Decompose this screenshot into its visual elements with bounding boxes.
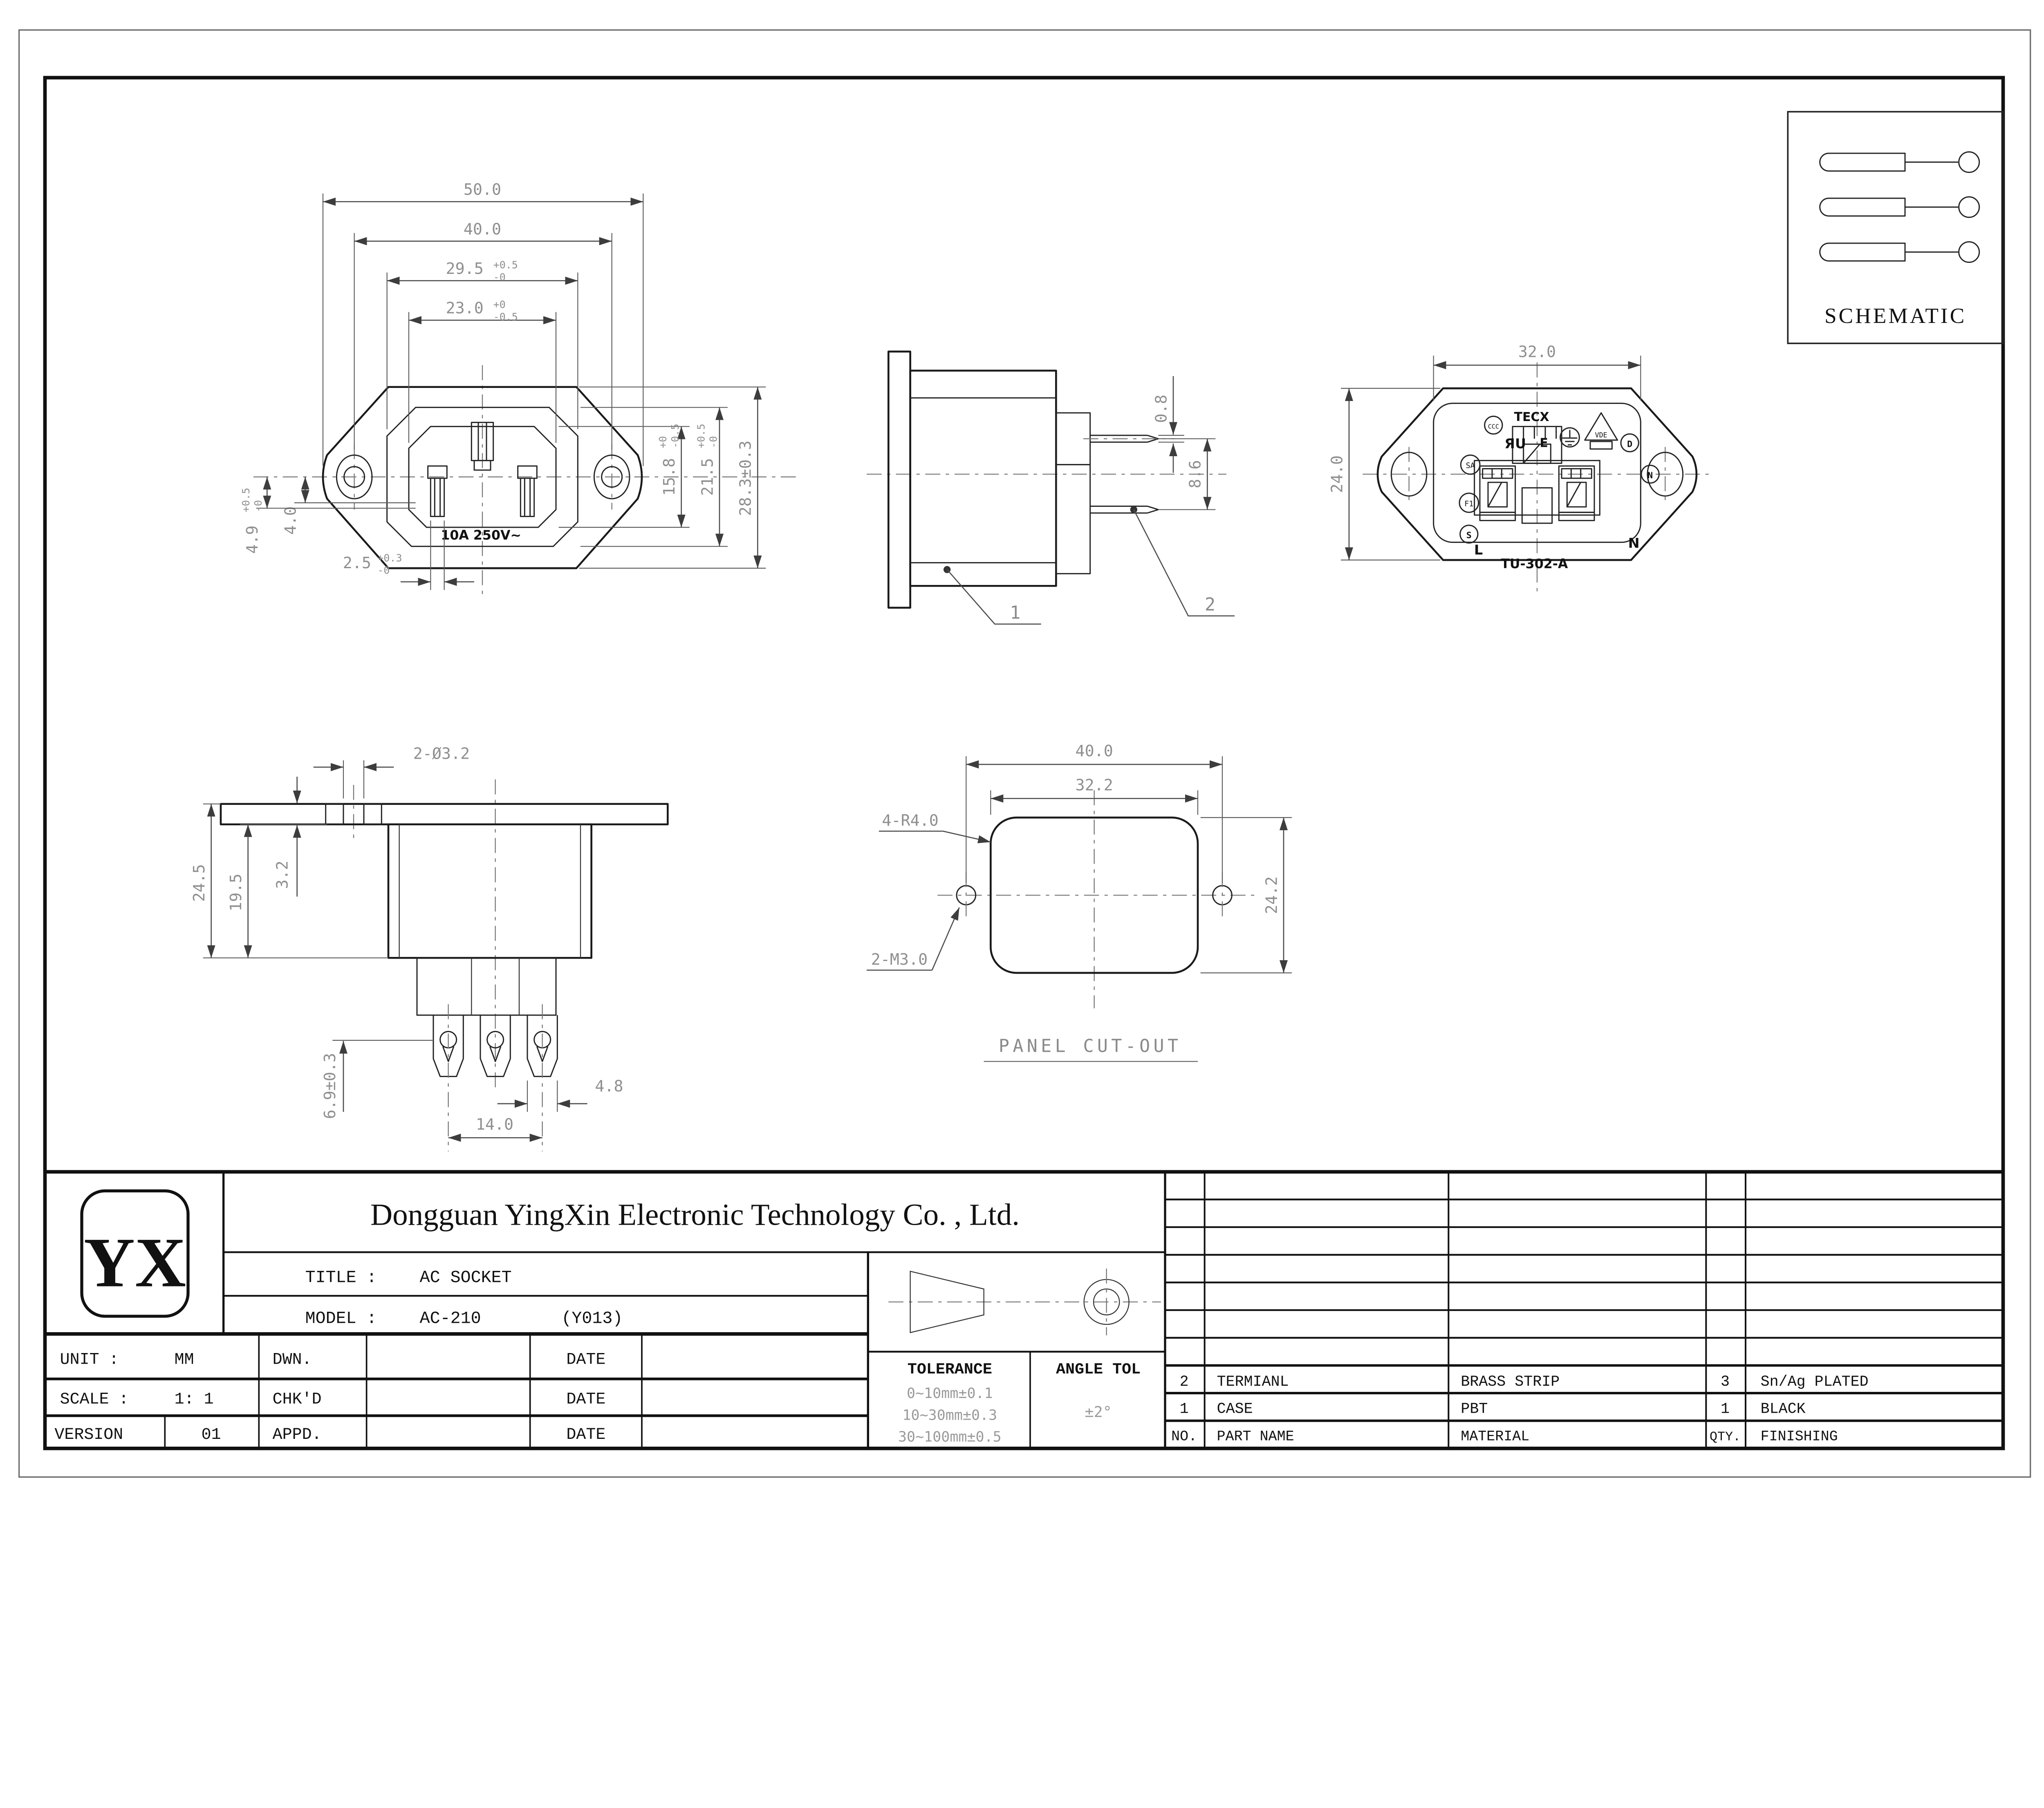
- svg-text:2.5: 2.5: [343, 554, 371, 572]
- vde-mark-icon: VDE: [1585, 413, 1618, 449]
- svg-text:4.9: 4.9: [243, 525, 262, 553]
- unit-label: UNIT :: [60, 1351, 119, 1369]
- title-value: AC SOCKET: [420, 1268, 512, 1288]
- title-block: YX Dongguan YingXin Electronic Technolog…: [45, 1172, 2003, 1449]
- svg-text:24.0: 24.0: [1328, 455, 1346, 493]
- svg-text:3.2: 3.2: [273, 860, 291, 889]
- svg-text:40.0: 40.0: [1076, 742, 1113, 760]
- schematic-label: SCHEMATIC: [1824, 303, 1966, 328]
- svg-text:+0.3: +0.3: [377, 552, 402, 564]
- svg-text:50.0: 50.0: [464, 181, 501, 199]
- company-name: Dongguan YingXin Electronic Technology C…: [370, 1198, 1020, 1232]
- svg-text:14.0: 14.0: [476, 1115, 513, 1134]
- svg-text:+0: +0: [657, 436, 669, 448]
- svg-text:3: 3: [1721, 1373, 1730, 1391]
- svg-text:4.0: 4.0: [281, 506, 300, 535]
- panel-cutout-label: PANEL CUT-OUT: [999, 1036, 1181, 1056]
- tolerance-row-1: 0~10mm±0.1: [907, 1385, 993, 1402]
- inner-border: [45, 78, 2003, 1448]
- svg-text:1: 1: [1010, 603, 1020, 623]
- appd-label: APPD.: [273, 1426, 322, 1444]
- drawing-canvas: SCHEMATIC 10A: [0, 0, 2044, 1507]
- dwn-date-label: DATE: [566, 1351, 605, 1369]
- svg-text:19.5: 19.5: [227, 874, 245, 911]
- svg-text:YX: YX: [84, 1224, 186, 1302]
- svg-text:24.2: 24.2: [1262, 876, 1281, 914]
- outer-border: [19, 30, 2031, 1477]
- engineering-drawing-sheet: SCHEMATIC 10A: [0, 0, 2044, 1507]
- front-view: 10A 250V~ 50.0 40.0 29.5 +0.5 -0 23.0 +0…: [240, 181, 797, 594]
- l-terminal-label: L: [1474, 542, 1483, 558]
- mount-dim-3-2: 3.2: [273, 777, 297, 896]
- svg-text:-0.5: -0.5: [493, 311, 518, 323]
- side-leader-2: 2: [1130, 506, 1235, 616]
- mount-view: 2-Ø3.2 24.5 19.5 3.2 6.9±0.3: [190, 745, 668, 1152]
- front-dim-40: 40.0: [354, 220, 612, 450]
- side-leader-1: 1: [944, 566, 1041, 624]
- panel-thread-callout: 2-M3.0: [867, 907, 959, 970]
- svg-text:+0.5: +0.5: [695, 423, 707, 448]
- svg-text:-0: -0: [377, 564, 390, 576]
- model-value: AC-210: [420, 1309, 481, 1329]
- mount-flange-plate: [221, 804, 668, 824]
- svg-text:F1: F1: [1464, 500, 1473, 508]
- svg-text:Sn/Ag PLATED: Sn/Ag PLATED: [1761, 1373, 1869, 1391]
- chkd-label: CHK'D: [273, 1390, 322, 1409]
- svg-text:-0: -0: [252, 500, 264, 512]
- svg-text:CCC: CCC: [1488, 423, 1499, 430]
- svg-text:4.8: 4.8: [595, 1077, 623, 1096]
- svg-text:2-Ø3.2: 2-Ø3.2: [413, 745, 470, 763]
- scale-label: SCALE :: [60, 1390, 129, 1409]
- svg-text:2-M3.0: 2-M3.0: [871, 950, 928, 969]
- hatched-hole-left: [326, 804, 343, 824]
- tolerance-row-2: 10~30mm±0.3: [902, 1407, 997, 1423]
- model-marking: TU-302-A: [1501, 557, 1568, 571]
- svg-text:0.8: 0.8: [1152, 394, 1170, 423]
- svg-text:+0.5: +0.5: [493, 259, 518, 271]
- svg-text:D: D: [1627, 439, 1632, 449]
- earth-symbol-icon: [1560, 428, 1580, 447]
- mount-body: [388, 824, 592, 958]
- back-terminal-block: [1475, 426, 1600, 523]
- side-step-lower: [1056, 465, 1090, 574]
- svg-text:15.8: 15.8: [660, 458, 679, 496]
- svg-text:PBT: PBT: [1461, 1401, 1488, 1418]
- mount-dim-2xd3-2: 2-Ø3.2: [314, 745, 470, 799]
- parts-table: 2 TERMIANL BRASS STRIP 3 Sn/Ag PLATED 1 …: [1165, 1172, 2003, 1449]
- svg-text:-0: -0: [493, 271, 506, 283]
- model-note: (Y013): [561, 1309, 623, 1329]
- scale-value: 1: 1: [175, 1390, 214, 1409]
- side-dim-0-8: 0.8: [1152, 376, 1184, 473]
- e-mark: E: [1540, 436, 1548, 450]
- svg-text:SA: SA: [1466, 462, 1475, 470]
- svg-text:21.5: 21.5: [698, 458, 717, 496]
- svg-text:28.3±0.3: 28.3±0.3: [737, 441, 755, 516]
- svg-text:PART NAME: PART NAME: [1217, 1428, 1294, 1445]
- dwn-label: DWN.: [273, 1351, 312, 1369]
- n-terminal-label: N: [1628, 535, 1640, 551]
- svg-text:1: 1: [1180, 1401, 1189, 1418]
- mount-step: [417, 958, 556, 1015]
- parts-row-case: 1 CASE PBT 1 BLACK: [1180, 1401, 1806, 1418]
- svg-text:N: N: [1647, 470, 1653, 481]
- svg-text:6.9±0.3: 6.9±0.3: [321, 1053, 339, 1119]
- front-dim-4-9: 4.9 +0.5 -0: [240, 477, 416, 554]
- front-neutral-pin: [518, 466, 537, 516]
- side-flange: [888, 352, 910, 608]
- svg-text:S: S: [1466, 531, 1472, 541]
- tecx-mark: TECX: [1514, 410, 1549, 424]
- angle-tol-value: ±2°: [1085, 1403, 1112, 1421]
- svg-text:32.0: 32.0: [1518, 343, 1556, 361]
- svg-text:-0.5: -0.5: [669, 423, 681, 448]
- angle-tol-label: ANGLE TOL: [1056, 1360, 1141, 1378]
- version-value: 01: [202, 1426, 221, 1444]
- svg-text:24.5: 24.5: [190, 864, 208, 902]
- svg-text:BRASS STRIP: BRASS STRIP: [1461, 1373, 1560, 1391]
- side-body: [910, 371, 1056, 586]
- svg-text:4-R4.0: 4-R4.0: [882, 811, 938, 830]
- svg-text:2: 2: [1180, 1373, 1189, 1391]
- parts-row-terminal: 2 TERMIANL BRASS STRIP 3 Sn/Ag PLATED: [1180, 1373, 1869, 1391]
- schematic-pin-symbols: [1820, 152, 1979, 262]
- hatched-hole-right: [364, 804, 381, 824]
- ul-mark-icon: ЯU: [1504, 436, 1526, 452]
- parts-header-row: NO. PART NAME MATERIAL QTY. FINISHING: [1171, 1428, 1838, 1445]
- svg-text:TERMIANL: TERMIANL: [1217, 1373, 1289, 1391]
- panel-cutout-view: 40.0 32.2 24.2 4-R4.0 2-M3.0 PANEL CUT-O…: [867, 742, 1292, 1062]
- svg-text:FINISHING: FINISHING: [1761, 1428, 1838, 1445]
- front-rating-text: 10A 250V~: [441, 528, 521, 543]
- panel-radius-callout: 4-R4.0: [879, 811, 991, 842]
- front-line-pin: [428, 466, 447, 516]
- svg-text:CASE: CASE: [1217, 1401, 1253, 1418]
- svg-text:8.6: 8.6: [1186, 460, 1205, 488]
- svg-text:-0: -0: [707, 436, 719, 448]
- mount-dim-6-9: 6.9±0.3: [321, 1040, 433, 1119]
- svg-text:QTY.: QTY.: [1710, 1429, 1741, 1444]
- chkd-date-label: DATE: [566, 1390, 605, 1409]
- model-label: MODEL :: [305, 1309, 377, 1329]
- svg-text:29.5: 29.5: [446, 260, 484, 278]
- mount-dim-14: 14.0: [448, 1115, 542, 1138]
- front-dim-21-5: 21.5 +0.5 -0: [580, 408, 728, 547]
- svg-text:BLACK: BLACK: [1761, 1401, 1806, 1418]
- side-view: 0.8 8.6 1 2: [867, 352, 1235, 624]
- projection-symbol-icon: [888, 1268, 1161, 1335]
- version-label: VERSION: [54, 1426, 123, 1444]
- svg-text:2: 2: [1205, 594, 1215, 615]
- title-label: TITLE :: [305, 1268, 377, 1288]
- mount-dim-19-5: 19.5: [227, 824, 327, 958]
- svg-text:+0: +0: [493, 298, 506, 310]
- side-lower-pin: [1090, 506, 1159, 513]
- svg-text:VDE: VDE: [1595, 431, 1607, 439]
- mount-dim-4-8: 4.8: [498, 1077, 623, 1112]
- unit-value: MM: [175, 1351, 194, 1369]
- appd-date-label: DATE: [566, 1426, 605, 1444]
- tolerance-row-3: 30~100mm±0.5: [898, 1429, 1002, 1445]
- svg-text:1: 1: [1721, 1401, 1730, 1418]
- svg-text:MATERIAL: MATERIAL: [1461, 1428, 1529, 1445]
- svg-text:23.0: 23.0: [446, 299, 484, 318]
- tolerance-label: TOLERANCE: [908, 1360, 992, 1378]
- svg-text:+0.5: +0.5: [240, 488, 252, 512]
- schematic-view: SCHEMATIC: [1788, 112, 2003, 343]
- svg-text:NO.: NO.: [1171, 1428, 1197, 1445]
- company-logo: YX: [82, 1191, 188, 1316]
- back-view: TECX CCC ЯU E VDE D SA N: [1328, 343, 1711, 597]
- svg-text:40.0: 40.0: [464, 220, 501, 238]
- svg-text:32.2: 32.2: [1076, 776, 1113, 794]
